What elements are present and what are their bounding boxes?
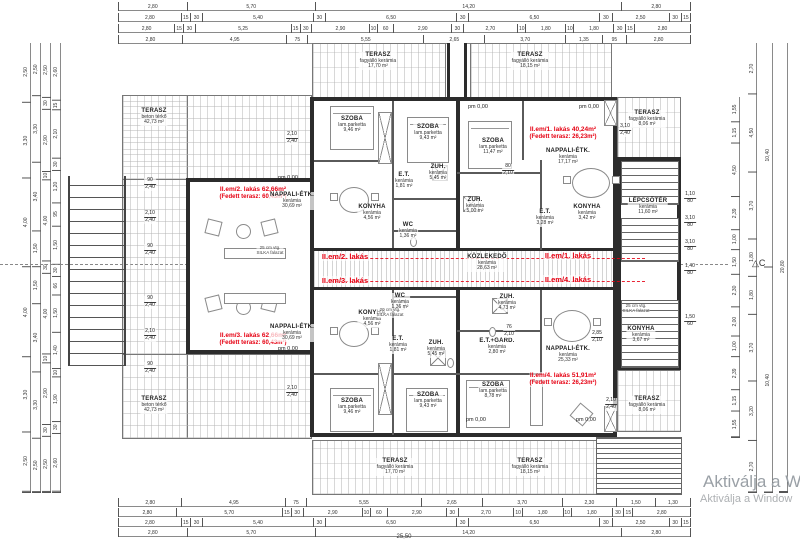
dimension-value: 30: [42, 425, 51, 437]
dimension-value: 2,80: [118, 35, 182, 44]
pm-level-label: pm 0,00: [468, 104, 488, 110]
dimension-value: 1,55: [731, 97, 740, 122]
dimension-value: 15: [625, 24, 634, 33]
dimension-value: 2,50: [612, 13, 669, 22]
dimension-value: 10,40: [764, 43, 773, 268]
dimension-value: 15: [181, 13, 190, 22]
dimension-value: 2,90: [387, 508, 446, 517]
dimension-value: 1,80: [522, 508, 563, 517]
dimension-value: 10: [42, 355, 51, 363]
partition: [540, 160, 542, 250]
dimension-value: 1,00: [731, 230, 740, 250]
dimension-value: 3,20: [748, 382, 757, 441]
room-label-szoba: SZOBAlam.parketta9,43 m²: [413, 124, 443, 142]
dimension-value: 30: [669, 518, 681, 527]
dimension-value: 2,00: [731, 307, 740, 337]
dimension-value: 2,60: [52, 43, 61, 101]
stair-flight-lower: [621, 218, 679, 262]
dimension-value: 75: [286, 35, 307, 44]
dimension-value: 30: [52, 159, 61, 171]
dimension-value: 10: [563, 508, 571, 517]
opening-dimension: 1,5060: [684, 315, 696, 328]
room-label-terasz-bottom-2: TERASZfagyálló kerámia18,15 m²: [511, 458, 549, 476]
dim-chain-left-3: 2,50302,90104,00304,00102,90302,50: [42, 43, 51, 493]
dimension-value: 30: [291, 508, 303, 517]
dim-chain-right-4: 20,80: [779, 43, 788, 493]
pm-level-label: pm 0,00: [579, 104, 599, 110]
dimension-value: 2,50: [612, 518, 669, 527]
dimension-value: 3,30: [32, 372, 41, 439]
dimension-value: 3,70: [748, 173, 757, 239]
corridor-tag-apartment-2: II.em/2. lakás: [320, 252, 370, 261]
pm-level-label: pm 0,00: [278, 346, 298, 352]
dimension-value: 2,80: [118, 13, 181, 22]
corridor-tag-apartment-3: II.em/3. lakás: [320, 276, 370, 285]
chair: [563, 176, 571, 184]
dimension-value: 10: [52, 369, 61, 377]
dimension-value: 2,90: [393, 24, 451, 33]
room-label-konyha: KONYHAkerámia3,67 m²: [626, 326, 655, 344]
dimension-value: 4,95: [181, 498, 285, 507]
room-label-szoba: SZOBAlam.parketta8,78 m²: [478, 382, 508, 400]
opening-dimension: 2,102,40: [144, 329, 156, 342]
dimension-value: 5,40: [202, 518, 313, 527]
dimension-value: 30: [613, 24, 624, 33]
room-label-nappali: NAPPALI-ÉTK.kerámia17,17 m²: [545, 148, 591, 166]
room-label-et: E.T.kerámia3,28 m²: [535, 209, 555, 227]
wall-note-silka: 20 cm vtg.SILKA falazat: [376, 308, 403, 318]
dimension-value: 15: [181, 518, 190, 527]
red-separation-line: [330, 281, 645, 282]
dimension-value: 75: [285, 498, 306, 507]
room-label-zuh: ZUH.kerámia5,00 m²: [465, 197, 485, 215]
dimension-value: 2,50: [42, 437, 51, 492]
opening-dimension: 902,40: [144, 362, 156, 375]
dimension-value: 1,50: [32, 231, 41, 267]
dimension-value: 30: [183, 24, 194, 33]
dimension-value: 14,20: [315, 2, 622, 11]
room-label-nappali: NAPPALI-ÉTK.kerámia30,69 m²: [269, 192, 315, 210]
dimension-value: 1,50: [616, 498, 655, 507]
dimension-value: 1,80: [573, 24, 613, 33]
chair: [544, 318, 552, 326]
wardrobe-box: [604, 100, 617, 126]
dimension-value: 30: [446, 508, 458, 517]
dimension-value: 2,50: [32, 439, 41, 492]
dimension-value: 5,55: [306, 498, 421, 507]
dimension-value: 5,40: [202, 13, 313, 22]
sofa: [224, 293, 286, 304]
dimension-value: 2,30: [731, 275, 740, 307]
dimension-value: 1,30: [655, 498, 690, 507]
unit-separation-wall: [456, 101, 460, 248]
dimension-value: 30: [313, 13, 325, 22]
section-marker-c: △C: [752, 258, 765, 269]
apartment-terrace-area: (Fedett terasz: 26,23m²): [529, 134, 596, 141]
room-label-terasz-right-bottom: TERASZfagyálló kerámia8,06 m²: [628, 396, 666, 414]
room-label-terasz-right-top: TERASZfagyálló kerámia8,06 m²: [628, 110, 666, 128]
dimension-value: 1,55: [731, 412, 740, 437]
dimension-value: 10: [369, 24, 377, 33]
dimension-value: 2,80: [118, 24, 174, 33]
room-label-et: E.T.kerámia1,81 m²: [388, 336, 408, 354]
dimension-value: 2,80: [118, 2, 187, 11]
apartment-label-1: II.em/1. lakás 40,24m² (Fedett terasz: 2…: [529, 126, 596, 141]
apartment-label-4: II.em/4. lakás 51,91m² (Fedett terasz: 2…: [529, 372, 596, 387]
dimension-value: 2,80: [118, 498, 181, 507]
dimension-value: 15: [681, 13, 690, 22]
dimension-value: 30: [52, 422, 61, 434]
room-label-konyha: KONYHAkerámia3,42 m²: [572, 204, 601, 222]
dimension-value: 4,00: [42, 273, 51, 354]
room-label-et: E.T.kerámia1,81 m²: [394, 172, 414, 190]
room-label-terasz-top-2: TERASZfagyálló kerámia18,15 m²: [511, 52, 549, 70]
windows-activation-watermark-line-1: Aktiválja a Win: [703, 472, 800, 492]
dimension-value: 2,10: [52, 110, 61, 159]
chair: [612, 176, 620, 184]
opening-dimension: 762,10: [503, 325, 515, 338]
dimension-value: 5,70: [187, 528, 315, 537]
toilet: [489, 327, 496, 337]
dimension-value: 1,00: [731, 337, 740, 357]
dimension-value: 2,80: [626, 35, 690, 44]
opening-dimension: 2,102,40: [286, 132, 298, 145]
dimension-value: 3,70: [482, 498, 562, 507]
unit-separation-wall: [456, 290, 460, 435]
opening-dimension: 902,40: [144, 244, 156, 257]
dimension-value: 2,30: [562, 498, 616, 507]
dimension-value: 2,80: [634, 24, 690, 33]
dimension-value: 30: [599, 13, 611, 22]
room-label-wc: WCkerámia1,36 m²: [398, 222, 418, 240]
dim-chain-top-3: 2,8015305,2515302,9010602,90302,70101,80…: [118, 24, 691, 33]
room-label-kozlekedo: KÖZLEKEDŐkerámia28,63 m²: [466, 254, 507, 272]
dimension-value: 30: [52, 265, 61, 277]
dim-chain-top-2: 2,8015305,40306,50306,50302,503015: [118, 13, 691, 22]
dimension-value: 30: [190, 518, 202, 527]
dimension-value: 15: [681, 518, 690, 527]
dim-chain-right-1: 1,551,154,502,391,001,502,302,001,002,39…: [731, 97, 740, 438]
terrace-gap-wall: [447, 43, 467, 97]
pm-level-label: pm 0,00: [576, 417, 596, 423]
dimension-value: 15: [174, 24, 183, 33]
dimension-value: 15: [282, 508, 291, 517]
dimension-value: 2,70: [463, 24, 518, 33]
dimension-value: 6,50: [325, 13, 456, 22]
room-label-szoba: SZOBAlam.parketta9,43 m²: [413, 392, 443, 410]
dimension-value: 30: [456, 13, 468, 22]
dimension-value: 1,15: [731, 390, 740, 412]
dimension-value: 1,80: [748, 277, 757, 315]
room-label-terasz-left-bottom: TERASZbeton térkő42,73 m²: [140, 396, 167, 414]
wall-note-silka: 25 cm vtg.SILKA falazat: [622, 304, 649, 314]
room-label-terasz-top-1: TERASZfagyálló kerámia17,70 m²: [359, 52, 397, 70]
dimension-value: 2,39: [731, 197, 740, 230]
entrance-stair: [596, 437, 682, 495]
opening-dimension: 1,1080: [684, 192, 696, 205]
opening-dimension: 3,102,40: [619, 124, 631, 137]
room-label-zuh: ZUH.kerámia5,45 m²: [428, 164, 448, 182]
total-width-dimension: 25,50: [396, 534, 411, 540]
windows-activation-watermark-line-2: Aktiválja a Window: [700, 493, 792, 505]
dimension-value: 1,80: [571, 508, 612, 517]
dimension-value: 2,80: [621, 2, 690, 11]
chair: [330, 327, 338, 335]
room-label-lepcsoter: LÉPCSŐTÉRkerámia11,60 m²: [628, 198, 668, 216]
dimension-value: 2,90: [311, 24, 369, 33]
dim-chain-bottom-3: 2,8015305,40306,50306,50302,503015: [118, 518, 691, 527]
room-label-szoba: SZOBAlam.parketta9,46 m²: [337, 116, 367, 134]
dimension-value: 1,80: [525, 24, 565, 33]
dimension-value: 14,20: [315, 528, 622, 537]
dimension-value: 3,70: [748, 315, 757, 381]
opening-dimension: 802,10: [502, 164, 514, 177]
dimension-value: 30: [612, 508, 624, 517]
dim-chain-top-1: 2,805,7014,202,80: [118, 2, 691, 11]
chair: [371, 327, 379, 335]
dimension-value: 1,90: [52, 377, 61, 422]
partition: [522, 101, 524, 160]
dim-chain-left-2: 2,503,303,401,501,503,403,302,50: [32, 43, 41, 493]
partition: [457, 172, 540, 174]
dimension-value: 1,50: [32, 268, 41, 304]
opening-dimension: 2,102,40: [144, 211, 156, 224]
dimension-value: 2,80: [118, 508, 176, 517]
dimension-value: 3,30: [32, 96, 41, 163]
dimension-value: 5,70: [187, 2, 315, 11]
opening-dimension: 3,1080: [684, 240, 696, 253]
partition: [392, 198, 456, 200]
apartment-area: II.em/4. lakás 51,91m²: [529, 372, 596, 380]
chair: [593, 318, 601, 326]
dimension-value: 2,80: [621, 528, 690, 537]
dimension-value: 10: [42, 172, 51, 180]
room-label-terasz-left-top: TERASZbeton térkő42,73 m²: [140, 108, 167, 126]
wardrobe-box: [378, 363, 392, 415]
dimension-value: 2,80: [118, 518, 181, 527]
dimension-value: 2,39: [731, 357, 740, 390]
dimension-value: 1,15: [731, 122, 740, 144]
dimension-value: 10: [565, 24, 573, 33]
dimension-value: 30: [599, 518, 611, 527]
partition: [540, 290, 542, 375]
dimension-value: 5,70: [176, 508, 282, 517]
dimension-value: 1,50: [52, 227, 61, 265]
dimension-value: 60: [377, 24, 393, 33]
dimension-value: 2,50: [22, 432, 31, 492]
room-label-zuh: ZUH.kerámia4,73 m²: [497, 294, 517, 312]
dimension-value: 30: [669, 13, 681, 22]
dim-chain-left-1: 2,503,304,004,003,302,50: [22, 43, 31, 493]
dimension-value: 20,80: [779, 43, 788, 492]
partition: [457, 330, 540, 332]
dimension-value: 6,50: [468, 518, 599, 527]
dimension-value: 4,00: [22, 178, 31, 267]
dimension-value: 6,50: [468, 13, 599, 22]
dimension-value: 10: [362, 508, 370, 517]
opening-dimension: 1,4080: [684, 264, 696, 277]
dimension-value: 30: [313, 518, 325, 527]
round-table: [236, 224, 251, 239]
dim-chain-bottom-1: 2,804,95755,552,653,702,301,501,30: [118, 498, 691, 507]
dimension-value: 10,40: [764, 268, 773, 493]
dimension-value: 2,65: [421, 498, 482, 507]
room-label-nappali: NAPPALI-ÉTK.kerámia25,33 m²: [545, 346, 591, 364]
dining-table: [572, 168, 610, 198]
dimension-value: 2,90: [303, 508, 362, 517]
floor-plan-canvas: 2,805,7014,202,80 2,8015305,40306,50306,…: [0, 0, 800, 541]
opening-dimension: 2,102,40: [286, 386, 298, 399]
dimension-value: 2,80: [118, 528, 187, 537]
dimension-value: 4,50: [748, 94, 757, 173]
dimension-value: 2,70: [458, 508, 514, 517]
opening-dimension: 902,40: [144, 296, 156, 309]
dimension-value: 2,50: [42, 43, 51, 98]
dimension-value: 10: [513, 508, 521, 517]
wall-note-silka: 25 cm vtg.SILKA falazat: [256, 246, 283, 256]
wardrobe-box: [378, 112, 392, 164]
dimension-value: 2,60: [52, 434, 61, 492]
dimension-value: 30: [42, 98, 51, 110]
dimension-value: 2,90: [42, 110, 51, 172]
dim-chain-bottom-2: 2,805,7015302,9010602,90302,70101,80101,…: [118, 508, 691, 517]
corridor-wall-bottom: [314, 287, 613, 290]
dimension-value: 1,50: [731, 250, 740, 275]
opening-dimension: 2,102,40: [605, 398, 617, 411]
dimension-value: 3,40: [32, 304, 41, 372]
dimension-value: 15: [52, 101, 61, 110]
dim-chain-left-4: 2,60152,10301,20951,5030661,501,40101,90…: [52, 43, 61, 493]
dimension-value: 66: [52, 277, 61, 295]
dimension-value: 5,25: [195, 24, 291, 33]
dimension-value: 2,90: [42, 363, 51, 425]
dimension-value: 10: [517, 24, 525, 33]
room-label-szoba: SZOBAlam.parketta11,47 m²: [478, 138, 508, 156]
dimension-value: 95: [52, 203, 61, 227]
dimension-value: 1,40: [52, 333, 61, 369]
partition: [392, 373, 540, 375]
dimension-value: 30: [456, 518, 468, 527]
dimension-value: 3,30: [22, 357, 31, 432]
dimension-value: 1,50: [52, 295, 61, 333]
dimension-value: 30: [300, 24, 311, 33]
dimension-value: 6,50: [325, 518, 456, 527]
corridor-tag-apartment-4: II.em/4. lakás: [543, 275, 593, 284]
room-label-terasz-bottom-1: TERASZfagyálló kerámia17,70 m²: [376, 458, 414, 476]
pm-level-label: pm 0,00: [278, 175, 298, 181]
dimension-value: 15: [291, 24, 300, 33]
chair: [330, 193, 338, 201]
chair: [371, 193, 379, 201]
toilet: [447, 358, 454, 368]
dimension-value: 60: [370, 508, 387, 517]
opening-dimension: 902,40: [144, 178, 156, 191]
terrace-bottom: [312, 440, 610, 495]
dimension-value: 4,00: [42, 180, 51, 261]
dimension-value: 4,00: [22, 268, 31, 357]
dimension-value: 3,30: [22, 103, 31, 178]
external-stair-ladder: [68, 176, 126, 366]
dimension-value: 2,70: [748, 43, 757, 94]
dimension-value: 2,50: [22, 43, 31, 103]
pm-level-label: pm 0,00: [466, 417, 486, 423]
opening-dimension: 2,852,10: [591, 331, 603, 344]
dimension-value: 4,50: [731, 144, 740, 197]
dimension-value: 2,50: [32, 43, 41, 96]
room-label-konyha: KONYHAkerámia4,56 m²: [357, 204, 386, 222]
apartment-area: II.em/1. lakás 40,24m²: [529, 126, 596, 134]
dining-table: [553, 310, 591, 342]
dimension-value: 15: [623, 508, 632, 517]
dimension-value: 2,80: [632, 508, 690, 517]
dimension-value: 30: [190, 13, 202, 22]
room-label-zuh: ZUH.kerámia5,45 m²: [426, 340, 446, 358]
opening-dimension: 3,1080: [684, 216, 696, 229]
corridor-tag-apartment-1: II.em/1. lakás: [543, 251, 593, 260]
room-label-nappali: NAPPALI-ÉTK.kerámia30,69 m²: [269, 324, 315, 342]
dimension-value: 3,40: [32, 163, 41, 231]
apartment-terrace-area: (Fedett terasz: 26,23m²): [529, 380, 596, 387]
room-label-szoba: SZOBAlam.parketta9,46 m²: [337, 398, 367, 416]
dimension-value: 4,95: [182, 35, 287, 44]
dimension-value: 1,20: [52, 171, 61, 203]
dimension-value: 30: [451, 24, 462, 33]
room-label-et-gard: E.T.+GARD.kerámia2,80 m²: [478, 338, 515, 356]
